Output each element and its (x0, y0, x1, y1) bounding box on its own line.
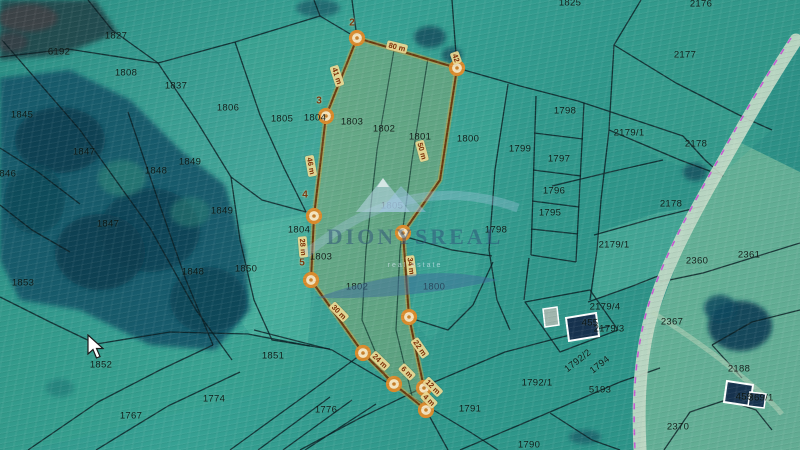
vertex-marker-dot (422, 386, 426, 390)
boundary-line (531, 229, 578, 234)
tree-clump (15, 107, 105, 173)
boundary-line (524, 258, 529, 300)
boundary-line (531, 96, 536, 255)
tree-clump (170, 267, 246, 333)
vertex-marker-dot (361, 351, 365, 355)
tree-clump (296, 0, 340, 17)
vertex-marker-dot (424, 408, 428, 412)
vertex-marker-dot (392, 382, 396, 386)
cursor-arrow-icon (88, 335, 103, 358)
vertex-marker-dot (324, 114, 328, 118)
terrain-region (432, 326, 648, 450)
boundary-line (576, 103, 584, 262)
boundary-line (534, 133, 583, 139)
cadastral-map-viewport[interactable]: 1827619218081837180618451847184618491848… (0, 0, 800, 450)
boundary-line (533, 170, 581, 176)
boundary-line (532, 201, 579, 207)
building (566, 313, 599, 341)
building (748, 392, 766, 408)
tree-clump (5, 166, 65, 234)
building (543, 307, 559, 327)
tree-clump (46, 379, 74, 397)
map-canvas (0, 0, 800, 450)
vertex-marker-dot (355, 36, 359, 40)
tree-clump (414, 26, 446, 48)
vertex-marker-dot (407, 315, 411, 319)
tree-clump (55, 214, 145, 290)
boundary-line (231, 177, 306, 212)
tree-clump (0, 4, 58, 32)
vertex-marker-dot (455, 66, 459, 70)
tree-clump (170, 197, 210, 227)
vertex-marker-dot (312, 214, 316, 218)
mouse-cursor (86, 334, 106, 361)
tree-clump (704, 295, 736, 321)
boundary-line (552, 160, 663, 186)
vertex-marker-dot (309, 278, 313, 282)
vertex-marker-dot (401, 231, 405, 235)
boundary-line (531, 255, 576, 262)
